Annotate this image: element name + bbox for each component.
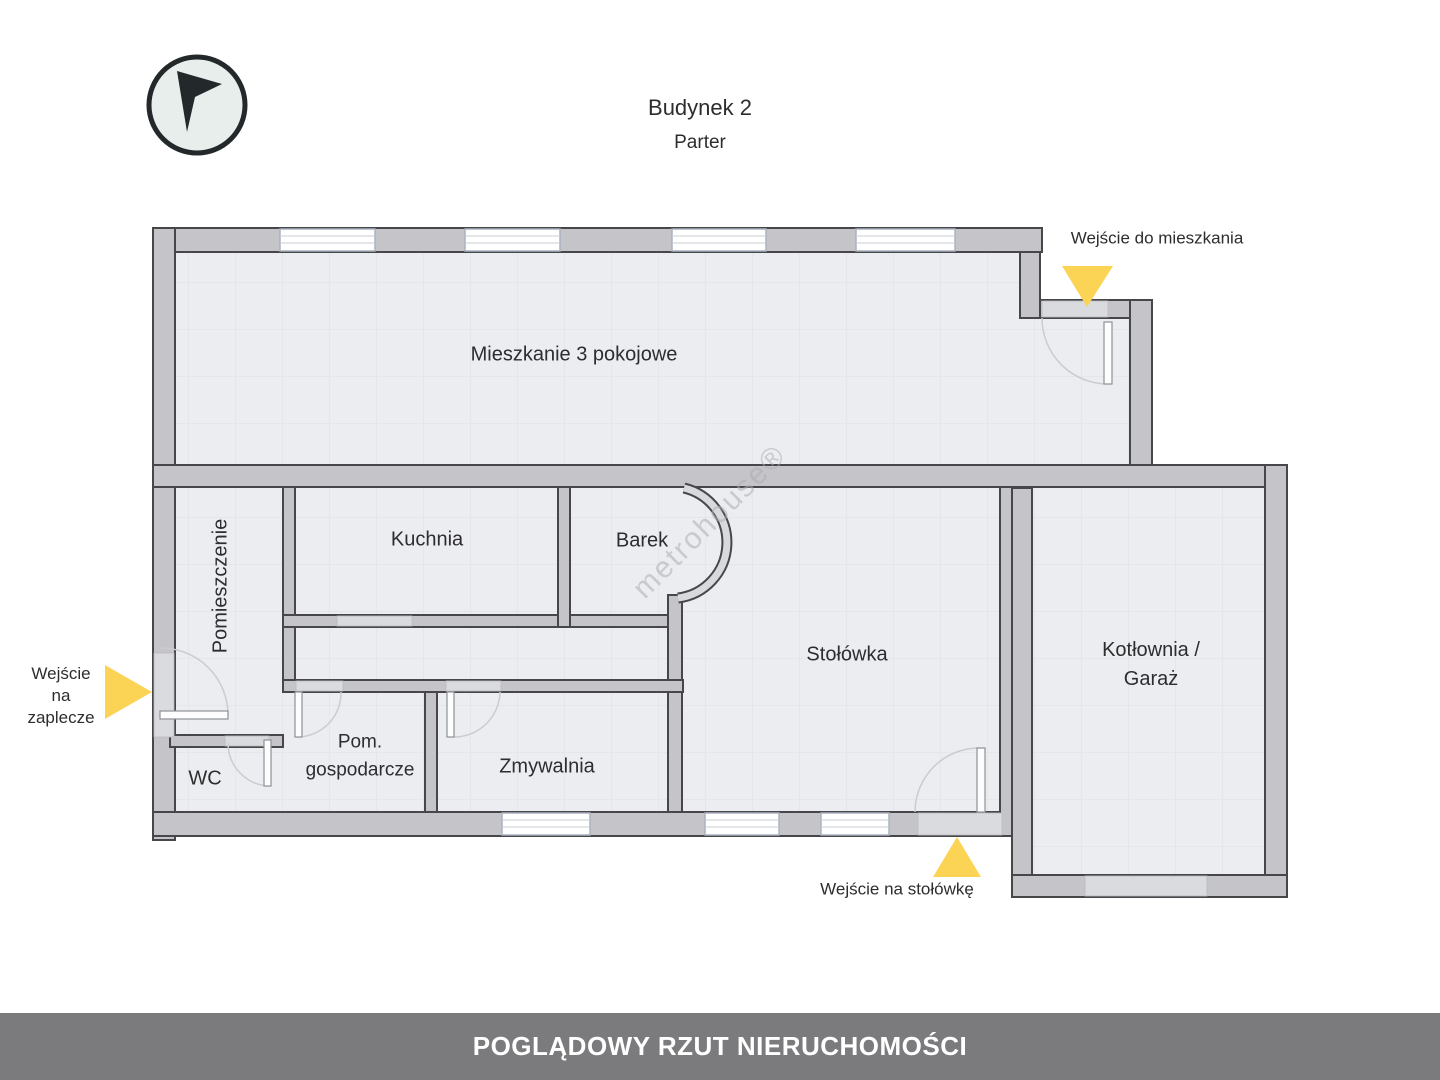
- room-label-pom-gospodarcze: Pom. gospodarcze: [306, 728, 415, 783]
- entrance-label-mieszkanie: Wejście do mieszkania: [1071, 227, 1244, 252]
- footer-title: POGLĄDOWY RZUT NIERUCHOMOŚCI: [473, 1031, 968, 1062]
- room-label-mieszkanie: Mieszkanie 3 pokojowe: [471, 341, 678, 370]
- floor-plan-page: Budynek 2 Parter metrohouse® Mieszkanie …: [0, 0, 1440, 1080]
- room-label-barek: Barek: [616, 527, 668, 556]
- room-label-pomieszczenie: Pomieszczenie: [207, 519, 236, 654]
- room-label-kotlownia-garaz: Kotłownia / Garaż: [1102, 636, 1200, 694]
- room-label-stolowka: Stołówka: [806, 641, 887, 670]
- entrance-label-zaplecze: Wejście na zaplecze: [27, 663, 94, 729]
- room-label-wc: WC: [188, 765, 221, 794]
- entrance-arrow-up-icon: [933, 837, 981, 877]
- footer-bar: POGLĄDOWY RZUT NIERUCHOMOŚCI: [0, 1013, 1440, 1080]
- entrance-arrow-right-icon: [105, 665, 152, 719]
- building-title: Budynek 2: [648, 95, 752, 121]
- room-label-zmywalnia: Zmywalnia: [499, 753, 595, 782]
- north-arrow-icon: [149, 57, 245, 153]
- room-label-kuchnia: Kuchnia: [391, 526, 463, 555]
- entrance-label-stolowka: Wejście na stołówkę: [820, 878, 974, 903]
- floor-subtitle: Parter: [674, 132, 726, 154]
